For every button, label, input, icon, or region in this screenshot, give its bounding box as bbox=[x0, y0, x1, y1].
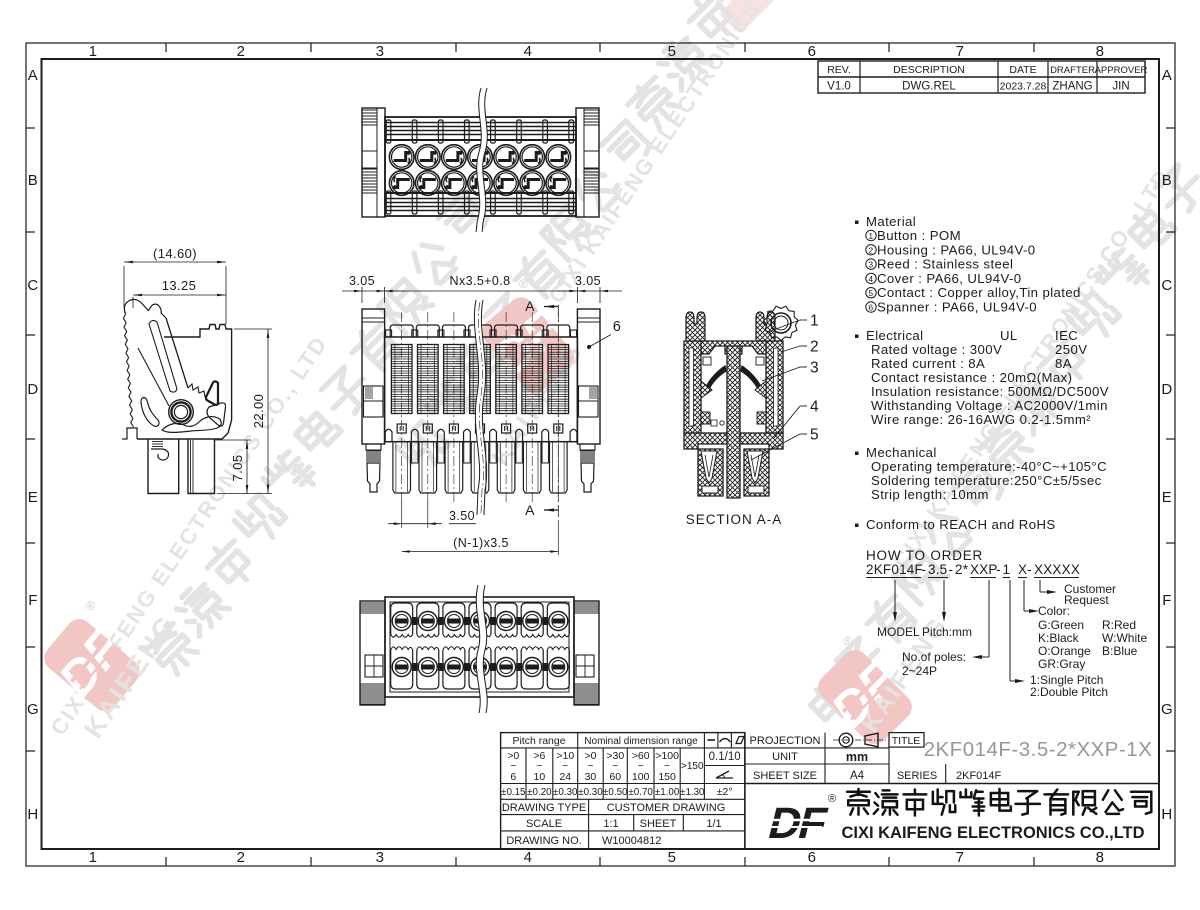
svg-text:Rated voltage : 300V: Rated voltage : 300V bbox=[871, 342, 1002, 357]
svg-text:1:1: 1:1 bbox=[603, 818, 618, 830]
svg-text:8: 8 bbox=[1096, 43, 1105, 60]
svg-text:10: 10 bbox=[534, 771, 546, 783]
svg-text:7.05: 7.05 bbox=[230, 455, 245, 482]
svg-text:6: 6 bbox=[613, 319, 621, 335]
svg-text:A: A bbox=[28, 67, 38, 84]
svg-text:5: 5 bbox=[668, 849, 677, 866]
svg-text:DWG.REL: DWG.REL bbox=[902, 81, 956, 93]
svg-text:(14.60): (14.60) bbox=[153, 246, 197, 261]
svg-text:2: 2 bbox=[810, 339, 819, 356]
svg-text:®: ® bbox=[86, 599, 95, 613]
svg-text:A: A bbox=[525, 502, 535, 518]
svg-text:22.00: 22.00 bbox=[251, 394, 266, 429]
svg-text:4: 4 bbox=[810, 399, 819, 416]
svg-text:SHEET: SHEET bbox=[640, 818, 677, 830]
svg-text:8: 8 bbox=[1096, 849, 1105, 866]
svg-text:C: C bbox=[1161, 277, 1172, 294]
svg-text:Material: Material bbox=[866, 214, 916, 229]
svg-text:-: - bbox=[1027, 562, 1032, 577]
svg-text:3: 3 bbox=[376, 849, 385, 866]
svg-text:2KF014F: 2KF014F bbox=[866, 562, 923, 577]
svg-text:3.05: 3.05 bbox=[575, 274, 601, 288]
svg-text:Pitch:mm: Pitch:mm bbox=[922, 625, 972, 639]
svg-text:7: 7 bbox=[956, 43, 965, 60]
svg-text:F: F bbox=[28, 592, 38, 609]
svg-text:Strip length: 10mm: Strip length: 10mm bbox=[871, 487, 989, 502]
svg-text:Spanner : PA66, UL94V-0: Spanner : PA66, UL94V-0 bbox=[877, 300, 1037, 315]
svg-text:3: 3 bbox=[376, 43, 385, 60]
svg-text:GR:Gray: GR:Gray bbox=[1038, 657, 1085, 671]
svg-text:X: X bbox=[1018, 562, 1027, 577]
svg-text:CUSTOMER DRAWING: CUSTOMER DRAWING bbox=[607, 802, 726, 814]
svg-text:H: H bbox=[1161, 806, 1172, 823]
svg-text:1: 1 bbox=[868, 231, 873, 241]
svg-text:G: G bbox=[27, 701, 39, 718]
svg-text:XXP: XXP bbox=[970, 562, 998, 577]
svg-text:Button : POM: Button : POM bbox=[877, 228, 961, 243]
svg-text:IEC: IEC bbox=[1055, 328, 1078, 343]
svg-text:5: 5 bbox=[810, 427, 819, 444]
svg-text:150: 150 bbox=[658, 771, 676, 783]
svg-text:G:Green: G:Green bbox=[1038, 618, 1084, 632]
svg-text:±0.30: ±0.30 bbox=[578, 787, 603, 798]
svg-text:Housing : PA66, UL94V-0: Housing : PA66, UL94V-0 bbox=[877, 242, 1036, 257]
svg-text:1: 1 bbox=[89, 43, 98, 60]
svg-text:6: 6 bbox=[868, 303, 873, 313]
svg-text:>150: >150 bbox=[681, 761, 704, 772]
svg-text:Cover : PA66, UL94V-0: Cover : PA66, UL94V-0 bbox=[877, 271, 1022, 286]
svg-text:Nominal dimension range: Nominal dimension range bbox=[584, 736, 698, 747]
svg-text:4: 4 bbox=[868, 274, 873, 284]
svg-text:±0.30: ±0.30 bbox=[553, 787, 578, 798]
svg-text:±0.20: ±0.20 bbox=[527, 787, 552, 798]
svg-text:3: 3 bbox=[810, 360, 819, 377]
svg-text:(N-1)x3.5: (N-1)x3.5 bbox=[453, 536, 509, 550]
svg-text:Insulation resistance: 500MΩ/D: Insulation resistance: 500MΩ/DC500V bbox=[871, 384, 1109, 399]
svg-text:®: ® bbox=[828, 793, 837, 805]
svg-text:6: 6 bbox=[808, 43, 817, 60]
svg-text:E: E bbox=[1162, 489, 1172, 506]
svg-text:±0.15: ±0.15 bbox=[501, 787, 526, 798]
svg-text:4: 4 bbox=[524, 849, 533, 866]
svg-text:ZHANG: ZHANG bbox=[1052, 81, 1092, 93]
svg-text:XXXXX: XXXXX bbox=[1034, 562, 1080, 577]
svg-text:5: 5 bbox=[668, 43, 677, 60]
svg-text:UL: UL bbox=[1000, 328, 1018, 343]
svg-text:®: ® bbox=[519, 277, 528, 291]
svg-text:SCALE: SCALE bbox=[526, 818, 562, 830]
svg-text:1: 1 bbox=[89, 849, 98, 866]
svg-text:2~24P: 2~24P bbox=[902, 664, 937, 678]
svg-text:Contact : Copper alloy,Tin pla: Contact : Copper alloy,Tin plated bbox=[877, 285, 1081, 300]
svg-text:DRAWING NO.: DRAWING NO. bbox=[506, 835, 581, 847]
svg-text:A: A bbox=[525, 298, 535, 314]
svg-text:-: - bbox=[949, 562, 954, 577]
svg-text:2: 2 bbox=[237, 43, 246, 60]
svg-text:SHEET SIZE: SHEET SIZE bbox=[753, 770, 817, 782]
svg-text:7: 7 bbox=[956, 849, 965, 866]
svg-text:±2°: ±2° bbox=[717, 786, 733, 798]
svg-text:4: 4 bbox=[524, 43, 533, 60]
svg-text:F: F bbox=[1162, 592, 1172, 609]
svg-text:3: 3 bbox=[868, 260, 873, 270]
svg-text:±0.50: ±0.50 bbox=[603, 787, 628, 798]
svg-text:B: B bbox=[1162, 172, 1172, 189]
svg-text:2023.7.28: 2023.7.28 bbox=[1000, 81, 1047, 93]
svg-text:PROJECTION: PROJECTION bbox=[750, 735, 821, 747]
svg-text:24: 24 bbox=[559, 771, 571, 783]
svg-text:1: 1 bbox=[810, 313, 819, 330]
svg-text:Wire range: 26-16AWG 0.2-1.5: Wire range: 26-16AWG 0.2-1.5mm² bbox=[871, 412, 1091, 427]
svg-text:R:Red: R:Red bbox=[1102, 618, 1136, 632]
svg-text:DRAWING TYPE: DRAWING TYPE bbox=[502, 802, 586, 814]
svg-text:2: 2 bbox=[868, 245, 873, 255]
svg-text:REV.: REV. bbox=[827, 64, 851, 76]
svg-text:250V: 250V bbox=[1055, 342, 1087, 357]
svg-text:B: B bbox=[28, 172, 38, 189]
svg-text:±1.00: ±1.00 bbox=[655, 787, 680, 798]
svg-text:JIN: JIN bbox=[1112, 81, 1129, 93]
svg-text:®: ® bbox=[843, 634, 852, 648]
svg-text:CIXI KAIFENG ELECTRONICS CO.,L: CIXI KAIFENG ELECTRONICS CO.,LTD bbox=[841, 824, 1144, 842]
svg-text:MODEL: MODEL bbox=[877, 625, 920, 639]
svg-text:±0.70: ±0.70 bbox=[628, 787, 653, 798]
svg-text:-: - bbox=[922, 562, 927, 577]
svg-text:Nx3.5+0.8: Nx3.5+0.8 bbox=[450, 274, 511, 288]
svg-text:C: C bbox=[27, 277, 38, 294]
svg-text:Request: Request bbox=[1064, 593, 1109, 607]
svg-text:Mechanical: Mechanical bbox=[866, 445, 937, 460]
svg-text:V1.0: V1.0 bbox=[827, 81, 851, 93]
svg-text:D: D bbox=[1161, 381, 1172, 398]
svg-text:D: D bbox=[27, 381, 38, 398]
svg-text:K:Black: K:Black bbox=[1038, 631, 1080, 645]
svg-text:6: 6 bbox=[808, 849, 817, 866]
svg-text:1: 1 bbox=[1003, 562, 1011, 577]
svg-text:SERIES: SERIES bbox=[897, 770, 937, 782]
svg-text:H: H bbox=[27, 806, 38, 823]
svg-text:2: 2 bbox=[237, 849, 246, 866]
svg-text:2*: 2* bbox=[955, 562, 969, 577]
svg-text:±1.30: ±1.30 bbox=[680, 787, 705, 798]
svg-text:W:White: W:White bbox=[1102, 631, 1147, 645]
svg-text:No.of poles:: No.of poles: bbox=[902, 650, 966, 664]
svg-text:G: G bbox=[1161, 701, 1173, 718]
svg-text:Pitch range: Pitch range bbox=[512, 735, 565, 747]
svg-text:A4: A4 bbox=[850, 770, 865, 782]
svg-text:2KF014F-3.5-2*XXP-1X: 2KF014F-3.5-2*XXP-1X bbox=[924, 738, 1153, 761]
svg-text:mm: mm bbox=[846, 750, 868, 764]
svg-text:SECTION A-A: SECTION A-A bbox=[686, 512, 783, 527]
svg-text:1/1: 1/1 bbox=[706, 818, 721, 830]
svg-text:60: 60 bbox=[609, 771, 621, 783]
svg-text:Contact resistance : 20mΩ(Max): Contact resistance : 20mΩ(Max) bbox=[871, 370, 1072, 385]
svg-text:Soldering temperature:250°C±5/: Soldering temperature:250°C±5/5sec bbox=[871, 473, 1102, 488]
svg-text:Operating temperature:-40°C~+1: Operating temperature:-40°C~+105°C bbox=[871, 459, 1107, 474]
svg-text:8A: 8A bbox=[1055, 356, 1072, 371]
svg-text:2KF014F: 2KF014F bbox=[956, 770, 1002, 782]
svg-text:A: A bbox=[1162, 67, 1172, 84]
svg-text:DATE: DATE bbox=[1009, 64, 1036, 76]
svg-text:13.25: 13.25 bbox=[162, 278, 197, 293]
svg-text:Withstanding Voltage : AC2000V: Withstanding Voltage : AC2000V/1min bbox=[871, 398, 1108, 413]
svg-text:30: 30 bbox=[585, 771, 597, 783]
svg-text:DRAFTER: DRAFTER bbox=[1050, 65, 1095, 76]
svg-text:DESCRIPTION: DESCRIPTION bbox=[893, 64, 965, 76]
svg-text:HOW TO ORDER: HOW TO ORDER bbox=[866, 548, 983, 563]
svg-text:APPROVER: APPROVER bbox=[1095, 65, 1148, 76]
svg-text:6: 6 bbox=[510, 771, 516, 783]
svg-text:UNIT: UNIT bbox=[772, 751, 798, 763]
svg-text:E: E bbox=[28, 489, 38, 506]
svg-text:3.50: 3.50 bbox=[449, 509, 475, 523]
svg-text:Rated current : 8A: Rated current : 8A bbox=[871, 356, 985, 371]
svg-text:Reed : Stainless steel: Reed : Stainless steel bbox=[877, 257, 1013, 272]
svg-text:Electrical: Electrical bbox=[866, 328, 924, 343]
svg-text:Conform to REACH and RoHS: Conform to REACH and RoHS bbox=[866, 517, 1056, 532]
svg-text:TITLE: TITLE bbox=[892, 735, 921, 747]
svg-text:0.1/10: 0.1/10 bbox=[709, 751, 741, 763]
svg-text:W10004812: W10004812 bbox=[602, 835, 661, 847]
svg-text:3.5: 3.5 bbox=[928, 562, 947, 577]
svg-text:100: 100 bbox=[632, 771, 650, 783]
svg-text:5: 5 bbox=[868, 288, 873, 298]
svg-text:O:Orange: O:Orange bbox=[1038, 644, 1091, 658]
svg-text:B:Blue: B:Blue bbox=[1102, 644, 1138, 658]
svg-text:2:Double Pitch: 2:Double Pitch bbox=[1030, 685, 1108, 699]
svg-text:3.05: 3.05 bbox=[349, 274, 375, 288]
svg-text:-: - bbox=[996, 562, 1001, 577]
